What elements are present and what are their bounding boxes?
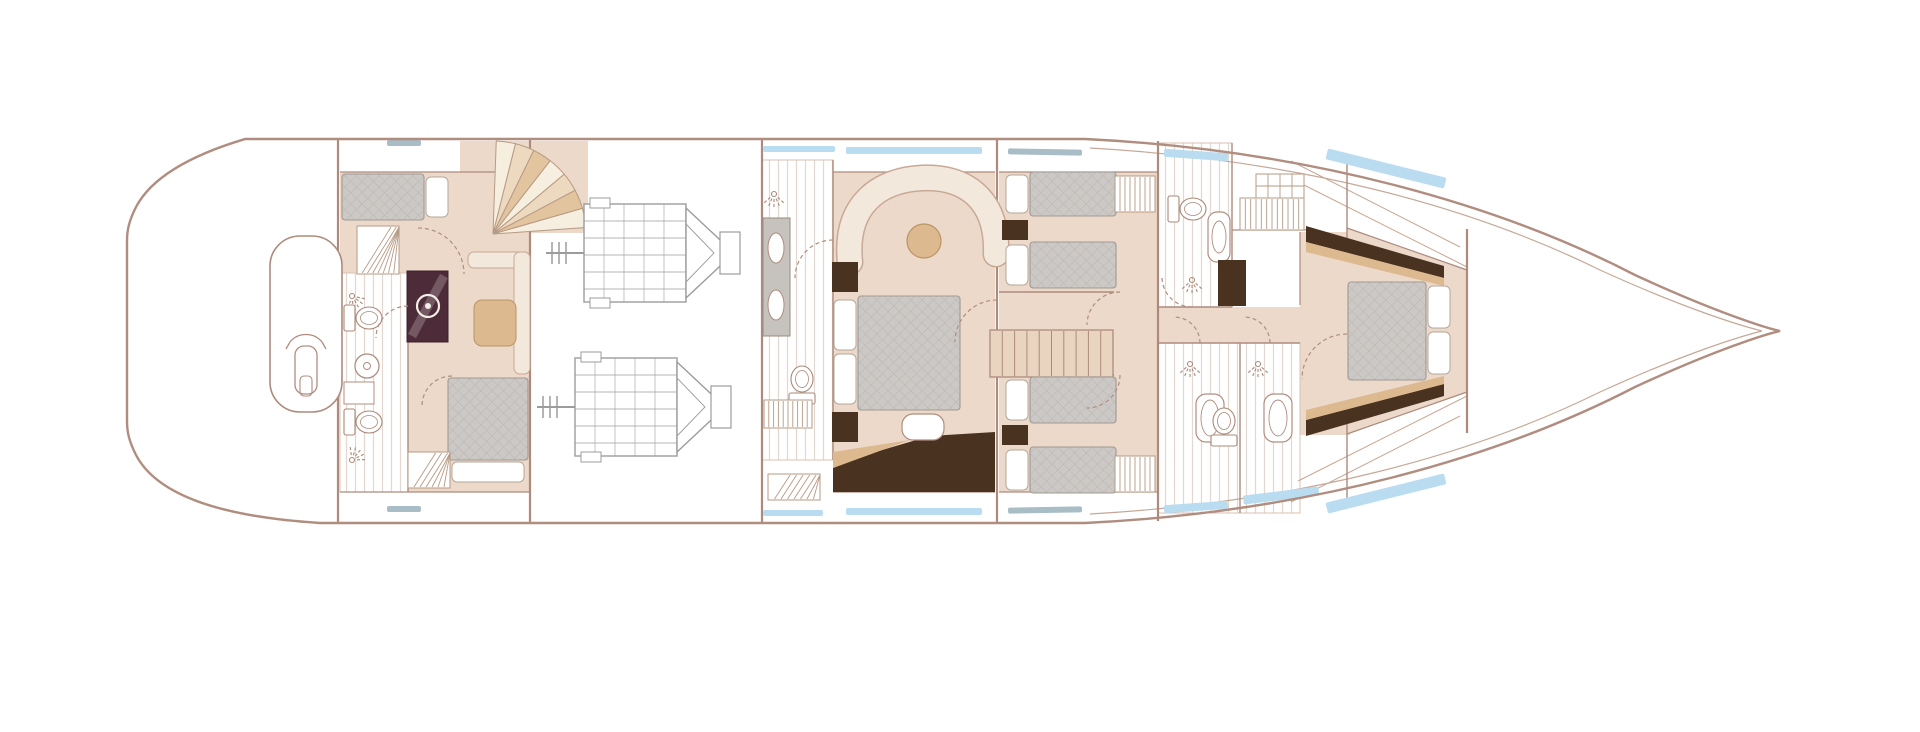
window-master-bottom: [846, 508, 982, 515]
crew-steps: [408, 452, 450, 488]
hall-shelves: [1256, 174, 1304, 198]
master-toilet: [789, 366, 815, 404]
guest-toilet-starboard: [1168, 196, 1206, 222]
vip-bed-mattress: [1348, 282, 1426, 380]
twin-bed-starboard-inner-pillow-1: [1006, 245, 1028, 285]
engine-starboard-block: [584, 204, 686, 302]
engine-starboard-gearbox: [720, 232, 740, 274]
guest-sink-starboard: [1208, 212, 1230, 262]
crew-galley-sink-dot: [425, 303, 431, 309]
master-bath-mat: [764, 400, 812, 428]
master-bed-pillow-2: [834, 354, 856, 404]
twin-wardrobe-starboard: [1115, 176, 1155, 212]
main-staircase: [990, 330, 1113, 377]
twin-bed-starboard-outer-pillow-1: [1006, 175, 1028, 213]
crew-berth-fwd-pillow-1: [452, 462, 524, 482]
guest-tub-port-2: [1264, 394, 1292, 442]
lower-deck-floorplan: [0, 0, 1920, 732]
twin-bed-starboard-outer-mattress: [1030, 172, 1116, 216]
twin-bed-port-outer: [1006, 447, 1116, 493]
guest-toilet-port: [1211, 408, 1237, 446]
deck-plan-canvas: [0, 0, 1920, 732]
master-bath-locker: [768, 474, 820, 500]
master-nightstand-top: [832, 262, 858, 292]
guest-toilet-port-bowl: [1213, 408, 1235, 434]
crew-table: [474, 300, 516, 346]
window-crew-top: [387, 140, 421, 146]
window-masterbath-bottom: [763, 510, 823, 516]
master-bed-pillow-1: [834, 300, 856, 350]
twin-bed-starboard-outer: [1006, 172, 1116, 216]
twin-bed-port-outer-pillow-1: [1006, 450, 1028, 490]
twin-nightstand-port: [1002, 425, 1028, 445]
master-sink-fwd: [768, 290, 784, 320]
tender-garage-pod: [270, 236, 342, 412]
engine-starboard-mount: [590, 298, 610, 308]
crew-vanity: [344, 382, 374, 404]
twin-bed-port-inner-mattress: [1030, 377, 1116, 423]
engine-port-block: [575, 358, 677, 456]
engine-port-mount: [581, 352, 601, 362]
twin-bed-port-outer-mattress: [1030, 447, 1116, 493]
crew-berth-aft-mattress: [342, 174, 424, 220]
crew-toilet-aft-tank: [344, 305, 355, 331]
crew-toilet-fwd-bowl: [356, 411, 382, 433]
engine-port-mount: [581, 452, 601, 462]
vip-bed-pillow-1: [1428, 286, 1450, 328]
crew-berth-fwd-mattress: [448, 378, 528, 460]
twin-bed-port-inner-pillow-1: [1006, 380, 1028, 420]
master-nightstand-bottom: [832, 412, 858, 442]
crew-berth-fwd: [448, 378, 528, 482]
master-coffee-table: [907, 224, 941, 258]
crew-toilet-fwd-tank: [344, 409, 355, 435]
crew-companionway: [357, 226, 399, 274]
master-stool: [902, 414, 944, 440]
engine-port-gearbox: [711, 386, 731, 428]
master-toilet-bowl: [791, 366, 813, 392]
twin-bed-starboard-inner-mattress: [1030, 242, 1116, 288]
guest-toilet-port-tank: [1211, 435, 1237, 446]
engine-starboard-mount: [590, 198, 610, 208]
crew-toilet-fwd: [344, 409, 382, 435]
guest-toilet-starboard-bowl: [1180, 198, 1206, 220]
hall-cabinet: [1218, 260, 1246, 306]
twin-bed-starboard-inner: [1006, 242, 1116, 288]
window-master-top: [846, 147, 982, 154]
window-crew-bottom: [387, 506, 421, 512]
crew-washbasin: [355, 354, 379, 378]
window-masterbath-top: [763, 146, 835, 152]
crew-berth-aft-pillow-1: [426, 177, 448, 217]
guest-toilet-starboard-tank: [1168, 196, 1179, 222]
floor-passage: [1158, 307, 1300, 343]
vip-bed-pillow-2: [1428, 332, 1450, 374]
twin-wardrobe-port: [1115, 456, 1155, 492]
master-sink-aft: [768, 233, 784, 263]
twin-nightstand-starboard: [1002, 220, 1028, 240]
twin-bed-port-inner: [1006, 377, 1116, 423]
hall-wardrobe: [1240, 198, 1304, 230]
master-bed-mattress: [858, 296, 960, 410]
crew-toilet-aft: [344, 305, 382, 331]
master-bath-locker-box: [768, 474, 820, 500]
crew-berth-aft: [342, 174, 448, 220]
